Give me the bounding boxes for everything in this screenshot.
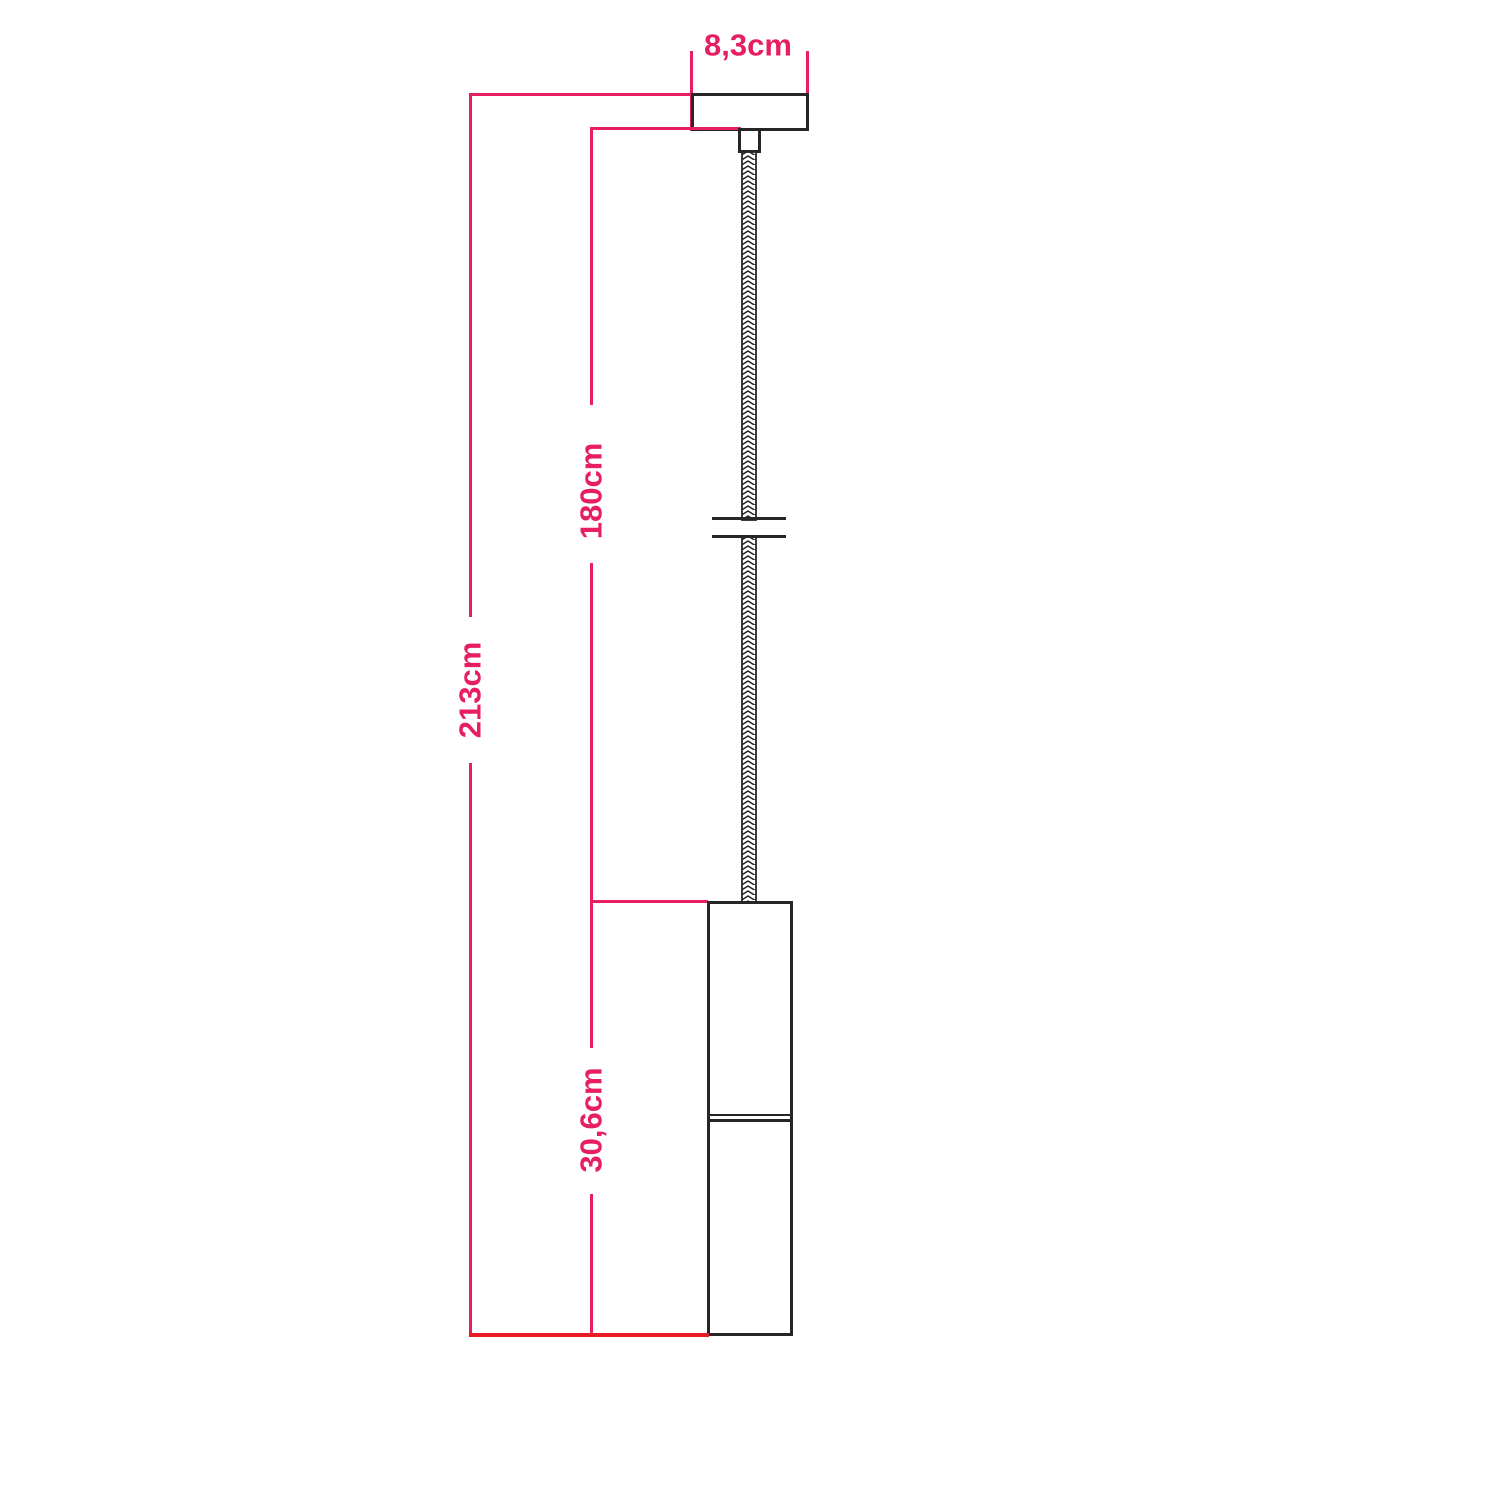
shade-height-label: 30,6cm bbox=[576, 1067, 607, 1172]
cable-tidy-line-bottom bbox=[712, 535, 786, 538]
total-height-label: 213cm bbox=[455, 642, 486, 739]
braided-cable-icon bbox=[741, 150, 757, 904]
cable-lower-segment bbox=[742, 537, 756, 902]
total-height-top-tick bbox=[469, 93, 693, 96]
shade-divider-thick bbox=[710, 1119, 790, 1122]
shade-top-tick bbox=[590, 900, 708, 903]
suspension-length-line-upper bbox=[590, 130, 593, 405]
total-height-line-upper bbox=[469, 93, 472, 617]
total-height-line-lower bbox=[469, 763, 472, 1337]
ceiling-rose bbox=[691, 93, 809, 131]
suspension-length-line-lower bbox=[590, 563, 593, 1048]
shade-divider-thin bbox=[710, 1114, 790, 1116]
cable-tidy-line-top bbox=[712, 517, 786, 520]
shade-height-line-lower bbox=[590, 1194, 593, 1337]
cable-upper-segment bbox=[742, 152, 756, 520]
canopy-width-label: 8,3cm bbox=[704, 30, 792, 61]
suspension-length-top-tick bbox=[590, 127, 741, 130]
suspension-length-label: 180cm bbox=[576, 443, 607, 540]
floor-baseline bbox=[469, 1333, 709, 1337]
dimension-diagram-canvas: 8,3cm 213cm 180cm 30,6cm bbox=[0, 0, 1500, 1500]
lamp-shade bbox=[707, 901, 793, 1336]
